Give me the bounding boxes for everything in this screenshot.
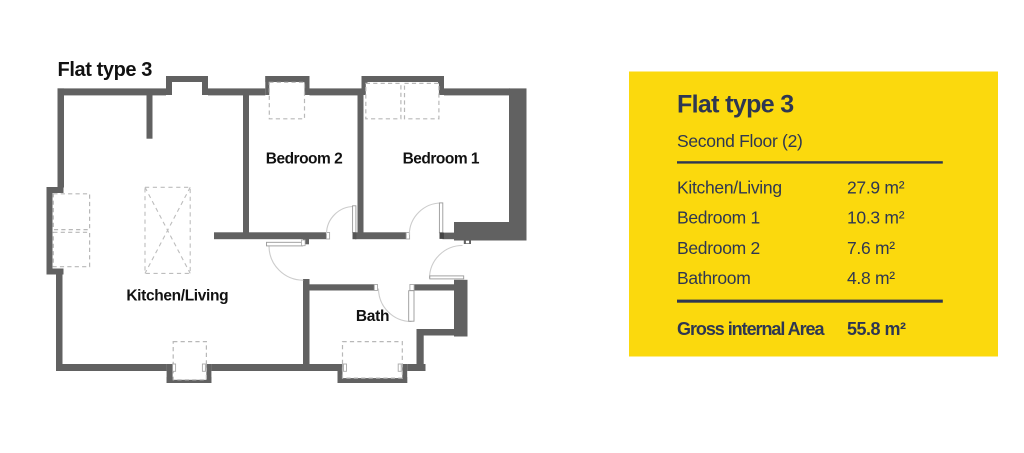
svg-text:27.9 m²: 27.9 m² [847, 178, 905, 198]
svg-text:55.8 m²: 55.8 m² [847, 319, 906, 339]
svg-text:Kitchen/Living: Kitchen/Living [126, 288, 228, 305]
svg-text:Flat type 3: Flat type 3 [677, 91, 794, 119]
svg-text:4.8 m²: 4.8 m² [847, 268, 895, 288]
svg-text:Second Floor (2): Second Floor (2) [677, 131, 803, 151]
svg-text:Bedroom 2: Bedroom 2 [266, 151, 342, 168]
svg-text:Gross internal Area: Gross internal Area [677, 319, 825, 339]
svg-text:10.3 m²: 10.3 m² [847, 208, 905, 228]
svg-text:Bathroom: Bathroom [677, 268, 750, 288]
svg-text:Bedroom 1: Bedroom 1 [677, 208, 760, 228]
svg-text:7.6 m²: 7.6 m² [847, 238, 895, 258]
svg-text:Flat type 3: Flat type 3 [58, 59, 153, 81]
svg-text:Bedroom 2: Bedroom 2 [677, 238, 760, 258]
svg-text:Bath: Bath [356, 308, 389, 325]
svg-text:Bedroom 1: Bedroom 1 [403, 151, 480, 168]
svg-text:Kitchen/Living: Kitchen/Living [677, 178, 782, 198]
